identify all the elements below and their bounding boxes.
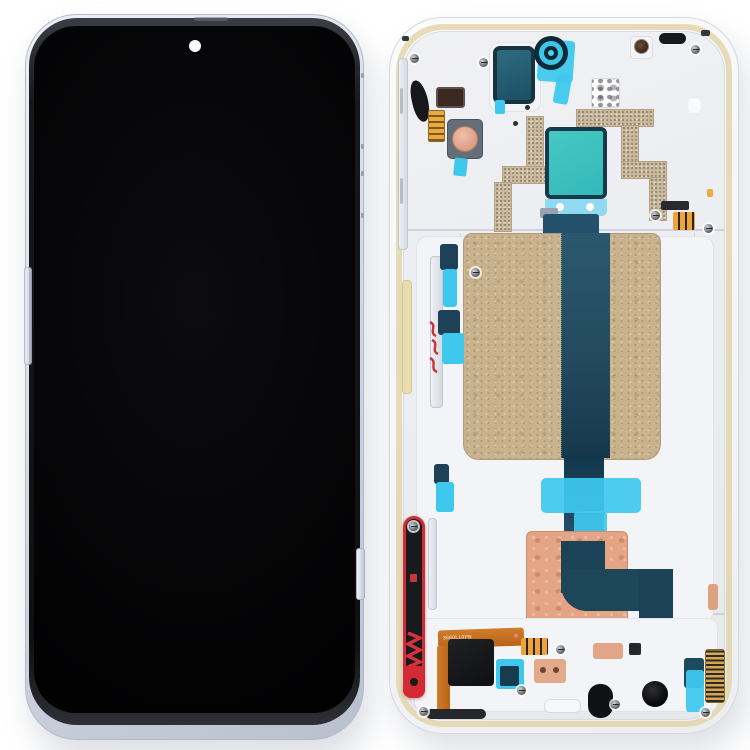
sensor-hole bbox=[634, 39, 649, 54]
volume-button-front bbox=[24, 267, 32, 365]
main-flex-ribbon bbox=[561, 233, 610, 458]
screw bbox=[556, 645, 565, 654]
rail-slot bbox=[400, 178, 403, 204]
antenna-trace bbox=[576, 109, 654, 127]
dark-pad-small bbox=[629, 643, 641, 655]
strip-hole bbox=[586, 203, 594, 211]
pad-hole bbox=[540, 667, 546, 673]
trigger-red-zigzag bbox=[406, 632, 422, 668]
side-cyan-tape bbox=[443, 269, 457, 307]
screw bbox=[517, 686, 526, 695]
rear-camera-bracket bbox=[493, 46, 535, 104]
side-cyan-tape bbox=[436, 482, 454, 512]
screw bbox=[611, 700, 620, 709]
qr-code-label bbox=[591, 78, 620, 108]
screw bbox=[651, 211, 660, 220]
gold-edge-strip bbox=[402, 280, 412, 394]
side-flex-piece bbox=[434, 464, 449, 484]
black-oval-port bbox=[588, 684, 613, 718]
loudspeaker-box bbox=[448, 639, 494, 686]
lcd-screen bbox=[34, 26, 355, 713]
power-button bbox=[356, 548, 365, 600]
side-flex-piece bbox=[440, 244, 458, 270]
trigger-red-square bbox=[410, 574, 417, 582]
screw bbox=[410, 54, 419, 63]
rail-sliver bbox=[428, 518, 437, 610]
gold-spring-contact bbox=[707, 189, 713, 197]
screw bbox=[409, 522, 418, 531]
gold-contact-block bbox=[673, 212, 695, 230]
antenna-trace bbox=[494, 182, 512, 232]
pad-hole bbox=[553, 667, 559, 673]
screw bbox=[479, 58, 488, 67]
screw bbox=[471, 268, 480, 277]
product-photo-stage: 3660L10PB bbox=[0, 0, 750, 750]
side-rail-slot-strip bbox=[398, 58, 408, 250]
screw-dot bbox=[525, 105, 530, 110]
antenna-line-mark bbox=[361, 213, 364, 218]
corner-dark-part bbox=[701, 30, 710, 36]
red-paint-squiggles bbox=[426, 318, 448, 374]
antenna-line-mark bbox=[361, 73, 364, 78]
screw-dot bbox=[513, 121, 518, 126]
trigger-foot-hole bbox=[410, 678, 418, 686]
lcd-flex-connector bbox=[705, 649, 725, 703]
flex-red-dot bbox=[514, 634, 518, 638]
red-trigger-slider bbox=[403, 516, 425, 698]
flex-gold-pads bbox=[521, 638, 548, 655]
screw bbox=[704, 224, 713, 233]
antenna-line-mark bbox=[361, 144, 364, 149]
earpiece-slit bbox=[194, 17, 228, 21]
corner-dark-part bbox=[402, 36, 409, 41]
speaker-grille-bar bbox=[426, 709, 486, 719]
salmon-pad bbox=[534, 659, 566, 683]
antenna-trace bbox=[526, 116, 544, 168]
cyan-tape-cross-horizontal bbox=[541, 478, 641, 513]
bottom-right-cyan-tape bbox=[686, 670, 704, 712]
speaker-mesh-oval bbox=[659, 33, 686, 44]
white-pill-bracket bbox=[544, 699, 581, 713]
front-camera-hole bbox=[189, 40, 201, 52]
front-assembly bbox=[25, 14, 364, 740]
cyan-tape-tab bbox=[453, 157, 468, 176]
salmon-pad-small bbox=[593, 643, 623, 659]
screw bbox=[691, 45, 700, 54]
antenna-gold-contacts bbox=[428, 110, 445, 142]
cyan-tape-tab bbox=[495, 100, 505, 114]
rail-slot bbox=[400, 88, 403, 114]
mic-hole-circle bbox=[642, 681, 668, 707]
teal-sticker bbox=[545, 127, 607, 199]
camera-hole-center-dot bbox=[548, 50, 554, 56]
antenna-line-mark bbox=[361, 171, 364, 176]
screw bbox=[701, 708, 710, 717]
proximity-window bbox=[436, 87, 465, 108]
copper-strip-right-edge bbox=[708, 584, 718, 610]
back-assembly: 3660L10PB bbox=[389, 17, 739, 734]
bottom-navy-square bbox=[500, 666, 519, 686]
mic-membrane bbox=[452, 126, 478, 152]
dark-connector-bar bbox=[661, 201, 689, 210]
screw bbox=[419, 707, 428, 716]
